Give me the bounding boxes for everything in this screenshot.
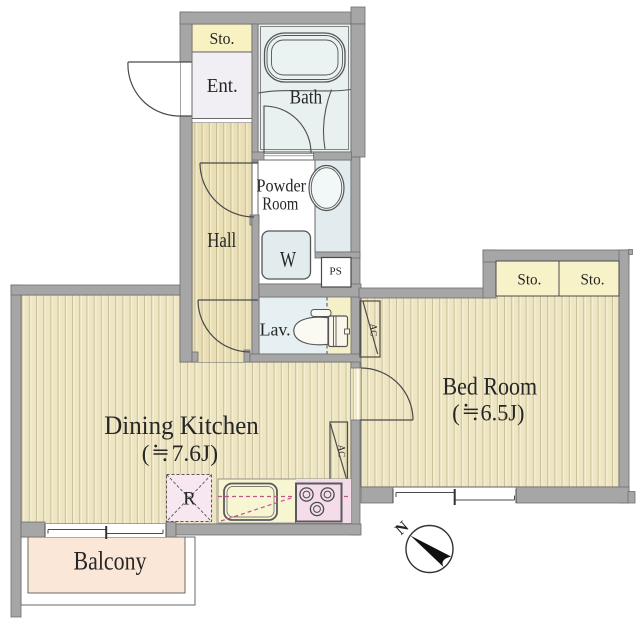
svg-text:Dining Kitchen: Dining Kitchen: [104, 411, 259, 440]
svg-text:PS: PS: [329, 267, 342, 278]
svg-text:Sto.: Sto.: [581, 272, 605, 289]
svg-text:7.6J): 7.6J): [172, 441, 219, 466]
svg-text:Bed Room: Bed Room: [443, 373, 538, 400]
svg-text:R: R: [183, 489, 196, 510]
svg-text:Ent.: Ent.: [207, 75, 238, 97]
svg-text:AC: AC: [369, 324, 379, 337]
svg-text:Hall: Hall: [207, 228, 236, 252]
svg-text:Bath: Bath: [290, 88, 323, 109]
svg-text:Sto.: Sto.: [517, 272, 541, 289]
svg-text:(: (: [142, 441, 150, 466]
svg-text:Lav.: Lav.: [260, 320, 291, 340]
svg-text:AC: AC: [337, 445, 347, 458]
svg-text:(: (: [452, 400, 460, 425]
svg-text:6.5J): 6.5J): [481, 400, 525, 425]
svg-text:Sto.: Sto.: [210, 29, 235, 48]
svg-text:Balcony: Balcony: [74, 547, 147, 576]
svg-text:Room: Room: [262, 193, 298, 213]
svg-text:W: W: [280, 247, 296, 272]
